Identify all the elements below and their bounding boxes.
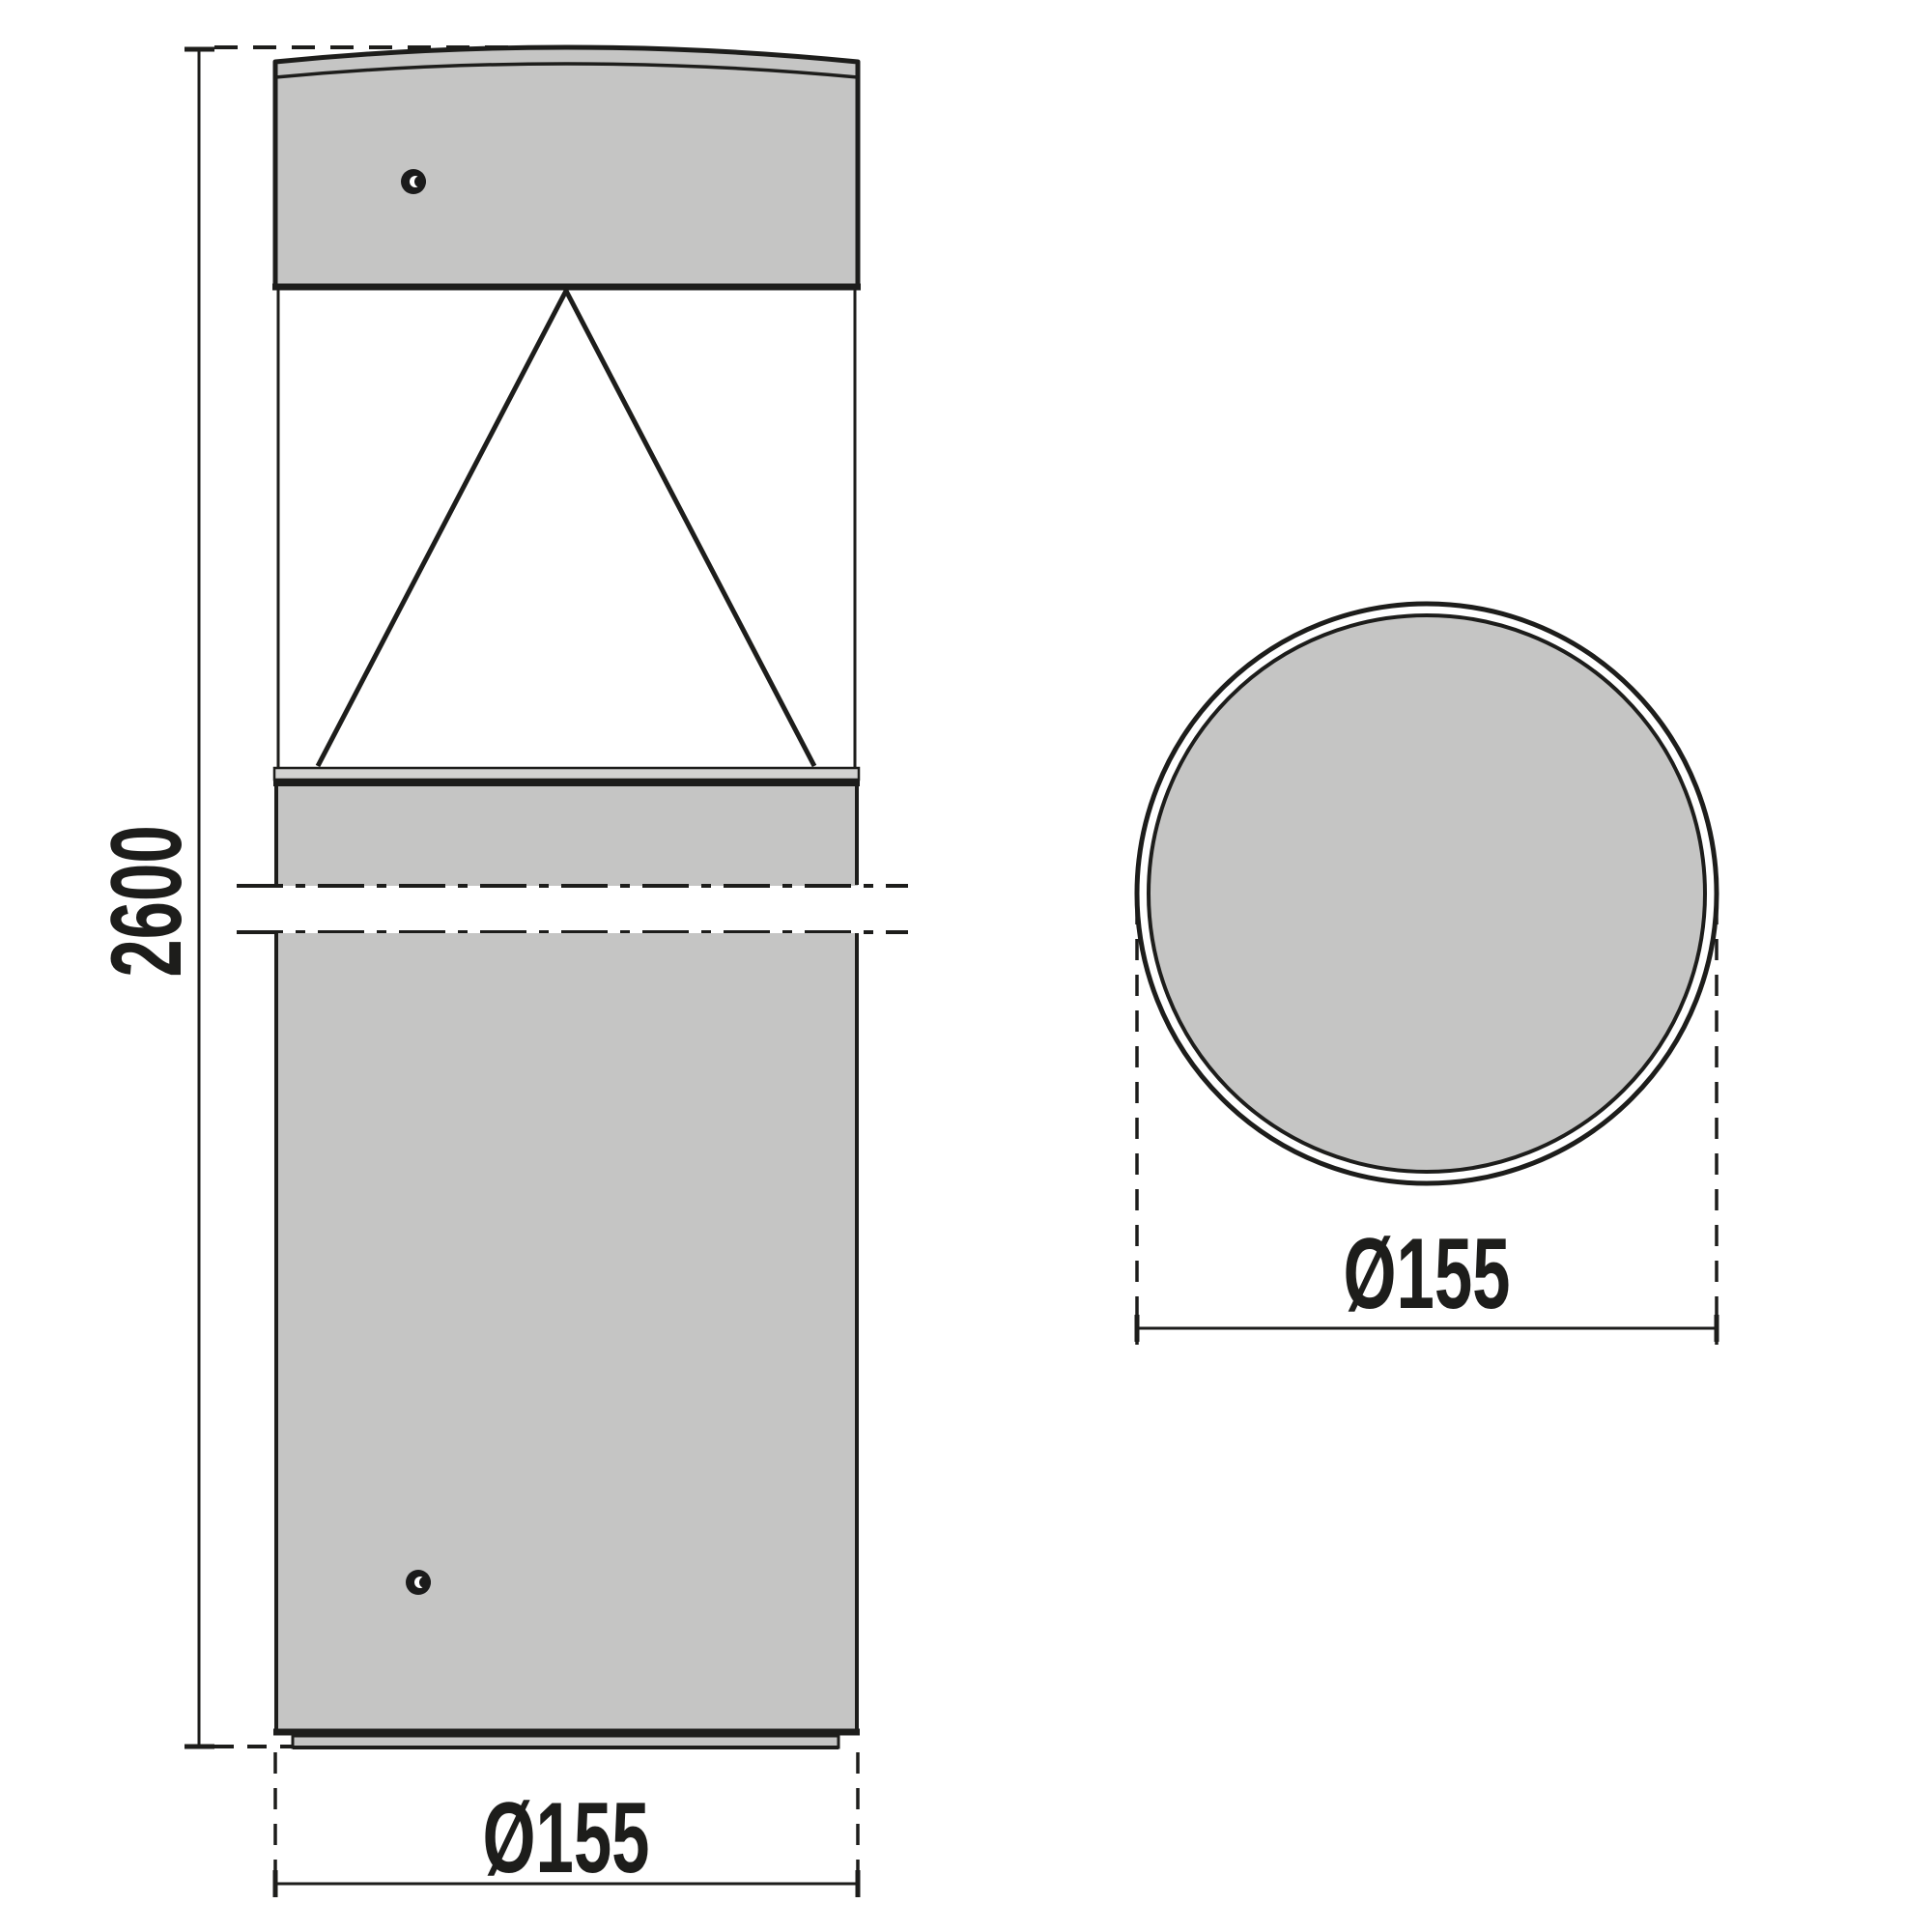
dimension-drawing-canvas: 2600 Ø155 Ø155 (0, 0, 1932, 1932)
bollard-technical-drawing (0, 0, 1932, 1932)
screw-icon (406, 1570, 431, 1595)
break-lines (237, 886, 908, 932)
top-view-inner-circle (1149, 615, 1705, 1172)
upper-body-band-fill (275, 786, 858, 886)
front-elevation-view (185, 47, 908, 1897)
front-diameter-dimension-label: Ø155 (482, 1788, 649, 1889)
upper-body-band (275, 786, 858, 886)
trim-strip-band (274, 768, 859, 780)
reflector-cone-triangle (318, 291, 814, 766)
top-diameter-dimension-label: Ø155 (1343, 1224, 1510, 1324)
base-plate (293, 1736, 838, 1747)
trim-strip (273, 768, 860, 786)
screw-icon (401, 169, 426, 194)
trim-strip-shadow-line (273, 780, 860, 786)
cap-outline (275, 47, 858, 287)
height-dimension-label: 2600 (97, 825, 197, 977)
lower-body-fill (275, 933, 858, 1731)
bollard-cap (272, 47, 861, 287)
light-window (278, 287, 855, 767)
lower-body-shaft (273, 933, 860, 1732)
